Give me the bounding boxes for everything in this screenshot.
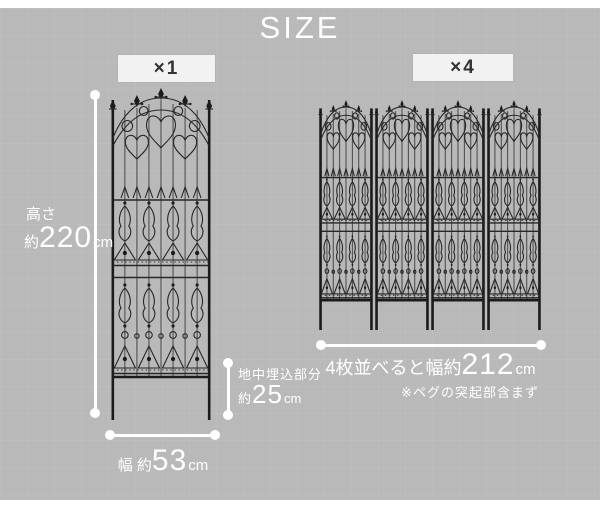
underground-value: 約25cm — [238, 379, 301, 410]
height-value: 約220cm — [8, 221, 154, 255]
quad-width-measure-line — [321, 344, 541, 347]
measure-endpoint-dot — [90, 90, 100, 100]
size-infographic: SIZE ×1 ×4 高さ 約220cm 地中埋込部分 約25cm 幅 約53c… — [0, 0, 600, 510]
measure-endpoint-dot — [223, 410, 233, 420]
height-unit: cm — [93, 234, 113, 251]
measure-endpoint-dot — [105, 430, 115, 440]
quad-width-note: ※ペグの突起部含まず — [370, 382, 570, 401]
width-caption: 幅 約53cm — [103, 444, 223, 478]
underground-approx: 約 — [238, 388, 252, 407]
height-number: 220 — [39, 221, 92, 255]
fence-illustration-quad-4 — [486, 100, 542, 330]
quad-width-label: 4枚並べると幅約 — [325, 354, 461, 380]
fence-illustration-quad-3 — [430, 100, 486, 330]
quad-width-unit: cm — [516, 361, 536, 378]
quantity-badge-quad: ×4 — [413, 54, 513, 81]
page-title: SIZE — [0, 10, 600, 46]
measure-endpoint-dot — [223, 358, 233, 368]
underground-measure-line — [227, 363, 230, 415]
underground-unit: cm — [284, 391, 301, 406]
height-approx: 約 — [24, 231, 39, 252]
quantity-badge-single: ×1 — [118, 55, 215, 82]
measure-endpoint-dot — [90, 408, 100, 418]
underground-number: 25 — [252, 379, 283, 410]
width-measure-line — [110, 434, 215, 437]
quad-width-caption: 4枚並べると幅約212cm — [308, 348, 553, 382]
fence-illustration-quad-2 — [374, 100, 430, 330]
quad-width-number: 212 — [461, 348, 514, 382]
fence-illustration-quad-1 — [318, 100, 374, 330]
width-unit: cm — [188, 457, 208, 474]
width-label: 幅 約 — [118, 454, 152, 475]
measure-endpoint-dot — [210, 430, 220, 440]
width-number: 53 — [152, 444, 187, 478]
